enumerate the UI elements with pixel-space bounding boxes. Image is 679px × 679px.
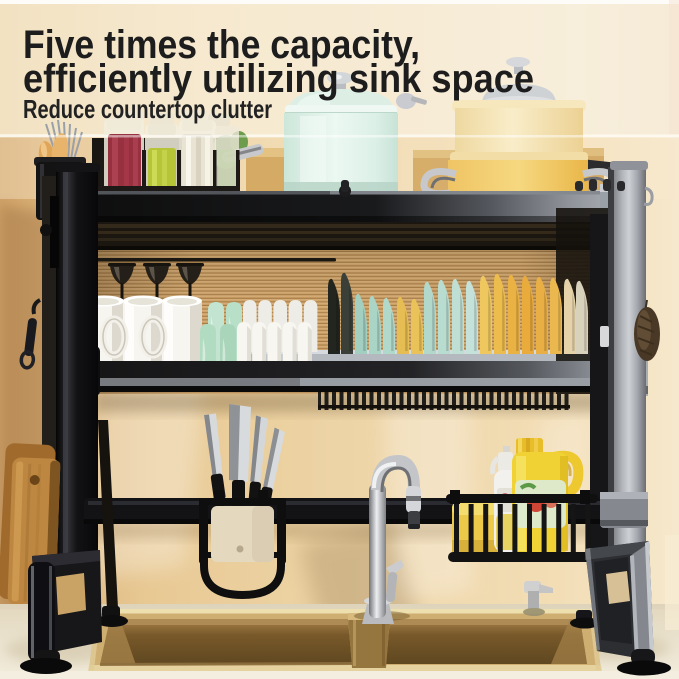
svg-text:Reduce countertop clutter: Reduce countertop clutter [23,94,272,124]
